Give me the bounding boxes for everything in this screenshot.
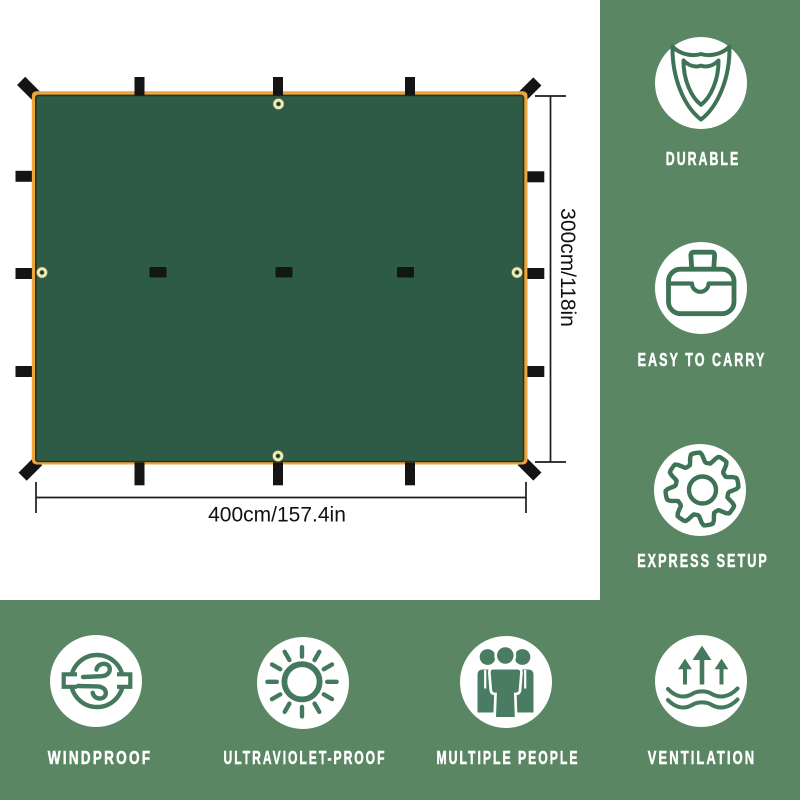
svg-text:300cm/118in: 300cm/118in	[556, 208, 579, 327]
svg-text:400cm/157.4in: 400cm/157.4in	[208, 504, 346, 527]
